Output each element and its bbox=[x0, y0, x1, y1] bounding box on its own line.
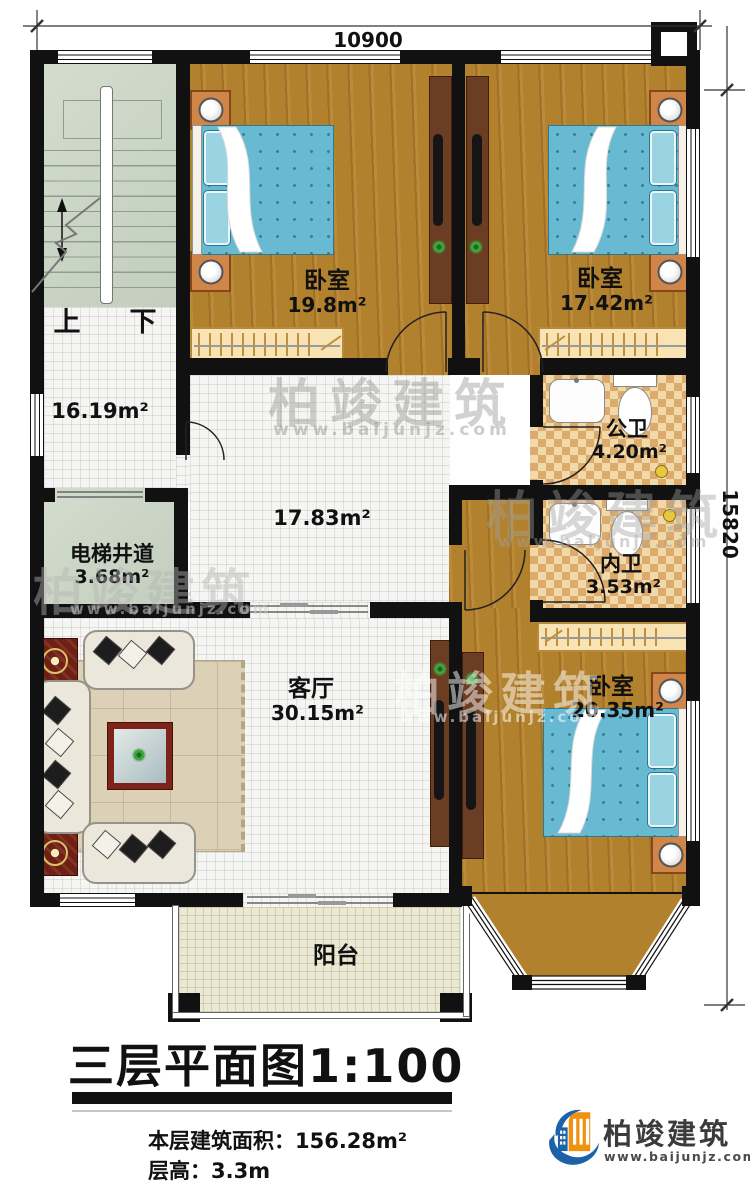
title-text: 三层平面图 bbox=[68, 1039, 308, 1093]
floor-height-value: 层高：3.3m bbox=[148, 1159, 270, 1182]
title-underline-bar bbox=[72, 1092, 452, 1104]
brand-name-text: 柏竣建筑 bbox=[603, 1117, 731, 1151]
brand-logo: 柏竣建筑 www.baijunjz.com bbox=[545, 1103, 750, 1178]
room-label-bedroom-left: 卧室 bbox=[287, 269, 367, 294]
page-title: 三层平面图1:100 bbox=[68, 1030, 464, 1096]
room-area-bedroom-left: 19.8m² bbox=[287, 295, 367, 317]
room-area-private-bath: 3.53m² bbox=[586, 577, 656, 598]
room-name: 公卫 bbox=[606, 417, 648, 441]
floor-area-value: 本层建筑面积：156.28m² bbox=[148, 1129, 407, 1153]
dimension-top: 10900 bbox=[318, 28, 418, 52]
room-area: 17.83m² bbox=[273, 506, 371, 530]
room-label-bedroom-master: 卧室 bbox=[571, 675, 651, 700]
room-area-bedroom-master: 20.35m² bbox=[571, 700, 651, 722]
room-name: 内卫 bbox=[600, 552, 642, 576]
room-area: 16.19m² bbox=[51, 399, 149, 423]
floor-area-text: 本层建筑面积：156.28m² bbox=[148, 1125, 407, 1155]
room-area: 20.35m² bbox=[571, 698, 664, 722]
room-label-private-bath: 内卫 bbox=[586, 553, 656, 576]
room-area: 30.15m² bbox=[271, 701, 364, 725]
brand-url-text: www.baijunjz.com bbox=[604, 1149, 750, 1164]
room-label-bedroom-right: 卧室 bbox=[560, 267, 640, 292]
stairs-down-label: 下 bbox=[125, 308, 161, 337]
door-swings bbox=[186, 312, 605, 610]
dimension-value: 15820 bbox=[718, 489, 742, 559]
room-label-elevator: 电梯井道 bbox=[47, 543, 177, 566]
floor-height-text: 层高：3.3m bbox=[148, 1155, 270, 1182]
room-area: 3.53m² bbox=[586, 576, 661, 598]
brand-name: 柏竣建筑 bbox=[603, 1111, 731, 1153]
room-name: 卧室 bbox=[304, 268, 350, 294]
up-text: 上 bbox=[54, 307, 81, 338]
room-name: 阳台 bbox=[313, 943, 359, 969]
room-name: 卧室 bbox=[577, 266, 623, 292]
bay-window bbox=[452, 886, 700, 990]
title-scale: 1:100 bbox=[308, 1039, 464, 1093]
floor-plan-canvas: 卧室 19.8m² 卧室 17.42m² 公卫 4.20m² 内卫 3.53m²… bbox=[0, 0, 750, 1182]
room-label-public-bath: 公卫 bbox=[592, 418, 662, 441]
brand-url: www.baijunjz.com bbox=[604, 1149, 750, 1164]
room-area-public-bath: 4.20m² bbox=[592, 442, 662, 463]
down-text: 下 bbox=[130, 307, 157, 338]
room-label-balcony: 阳台 bbox=[296, 944, 376, 969]
room-area-hall-upper: 16.19m² bbox=[50, 400, 150, 423]
room-area: 4.20m² bbox=[592, 441, 667, 463]
room-name: 客厅 bbox=[288, 676, 334, 702]
room-name: 电梯井道 bbox=[70, 542, 154, 566]
dimension-lines bbox=[23, 10, 745, 1011]
room-area: 3.68m² bbox=[75, 566, 150, 588]
room-area: 17.42m² bbox=[560, 291, 653, 315]
brand-logo-icon bbox=[545, 1103, 601, 1169]
plan-lines-overlay bbox=[0, 0, 750, 1035]
bed-folds bbox=[218, 127, 616, 833]
dimension-right: 15820 bbox=[718, 479, 742, 569]
dimension-value: 10900 bbox=[333, 28, 403, 52]
room-area-living: 30.15m² bbox=[271, 703, 351, 725]
room-name: 卧室 bbox=[588, 674, 634, 700]
room-area-bedroom-right: 17.42m² bbox=[560, 293, 640, 315]
room-area-hall-main: 17.83m² bbox=[272, 507, 372, 530]
room-label-living: 客厅 bbox=[271, 677, 351, 702]
room-area: 19.8m² bbox=[288, 293, 367, 317]
title-underline-thin bbox=[72, 1110, 452, 1112]
stairs-up-label: 上 bbox=[49, 308, 85, 337]
room-area-elevator: 3.68m² bbox=[47, 567, 177, 588]
stair-marks bbox=[32, 198, 100, 292]
